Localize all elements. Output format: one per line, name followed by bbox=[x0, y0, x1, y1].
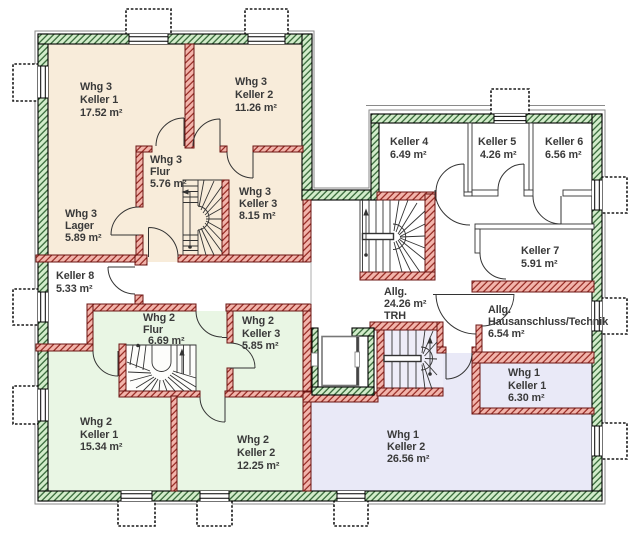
svg-text:Keller 7: Keller 7 bbox=[521, 245, 559, 257]
svg-text:Keller 2: Keller 2 bbox=[387, 441, 425, 453]
svg-text:5.76 m²: 5.76 m² bbox=[150, 178, 187, 190]
svg-text:Keller 5: Keller 5 bbox=[478, 136, 516, 148]
svg-text:Keller 2: Keller 2 bbox=[237, 447, 275, 459]
svg-text:Whg 3: Whg 3 bbox=[239, 186, 271, 198]
svg-text:Keller 3: Keller 3 bbox=[239, 198, 277, 210]
svg-text:Whg 2: Whg 2 bbox=[237, 434, 269, 446]
svg-text:Allg.: Allg. bbox=[384, 286, 407, 298]
svg-text:5.91 m²: 5.91 m² bbox=[521, 258, 558, 270]
svg-text:8.15 m²: 8.15 m² bbox=[239, 210, 276, 222]
svg-text:Whg 3: Whg 3 bbox=[235, 76, 267, 88]
svg-text:Whg 3: Whg 3 bbox=[150, 154, 182, 166]
svg-text:Keller 4: Keller 4 bbox=[390, 136, 428, 148]
svg-text:5.33 m²: 5.33 m² bbox=[56, 283, 93, 295]
svg-text:Lager: Lager bbox=[65, 220, 95, 232]
svg-text:Allg.: Allg. bbox=[488, 304, 511, 316]
svg-text:TRH: TRH bbox=[384, 310, 406, 322]
svg-text:Whg 2: Whg 2 bbox=[242, 315, 274, 327]
svg-text:Whg 2: Whg 2 bbox=[143, 312, 175, 324]
svg-text:Keller 8: Keller 8 bbox=[56, 270, 94, 282]
svg-text:5.85 m²: 5.85 m² bbox=[242, 340, 279, 352]
svg-text:Whg 3: Whg 3 bbox=[80, 81, 112, 93]
svg-text:Hausanschluss/Technik: Hausanschluss/Technik bbox=[488, 316, 609, 328]
svg-text:6.69 m²: 6.69 m² bbox=[148, 335, 185, 347]
svg-text:6.54 m²: 6.54 m² bbox=[488, 328, 525, 340]
svg-text:12.25 m²: 12.25 m² bbox=[237, 460, 280, 472]
svg-text:Keller 3: Keller 3 bbox=[242, 328, 280, 340]
svg-text:17.52 m²: 17.52 m² bbox=[80, 107, 123, 119]
svg-text:6.49 m²: 6.49 m² bbox=[390, 149, 427, 161]
svg-text:15.34 m²: 15.34 m² bbox=[80, 441, 123, 453]
svg-text:4.26 m²: 4.26 m² bbox=[480, 149, 517, 161]
svg-text:26.56 m²: 26.56 m² bbox=[387, 453, 430, 465]
svg-text:Keller 1: Keller 1 bbox=[508, 380, 546, 392]
svg-text:6.56 m²: 6.56 m² bbox=[545, 149, 582, 161]
svg-text:Keller 1: Keller 1 bbox=[80, 429, 118, 441]
svg-text:6.30 m²: 6.30 m² bbox=[508, 392, 545, 404]
svg-text:Whg 1: Whg 1 bbox=[387, 429, 419, 441]
svg-text:Flur: Flur bbox=[150, 166, 171, 178]
svg-text:11.26 m²: 11.26 m² bbox=[235, 102, 277, 114]
svg-text:Keller 1: Keller 1 bbox=[80, 94, 118, 106]
svg-text:Whg 3: Whg 3 bbox=[65, 208, 97, 220]
svg-text:Keller 2: Keller 2 bbox=[235, 89, 273, 101]
svg-text:Whg 1: Whg 1 bbox=[508, 367, 540, 379]
svg-text:Keller 6: Keller 6 bbox=[545, 136, 583, 148]
svg-text:24.26 m²: 24.26 m² bbox=[384, 298, 427, 310]
svg-text:Whg 2: Whg 2 bbox=[80, 416, 112, 428]
svg-text:5.89 m²: 5.89 m² bbox=[65, 232, 102, 244]
